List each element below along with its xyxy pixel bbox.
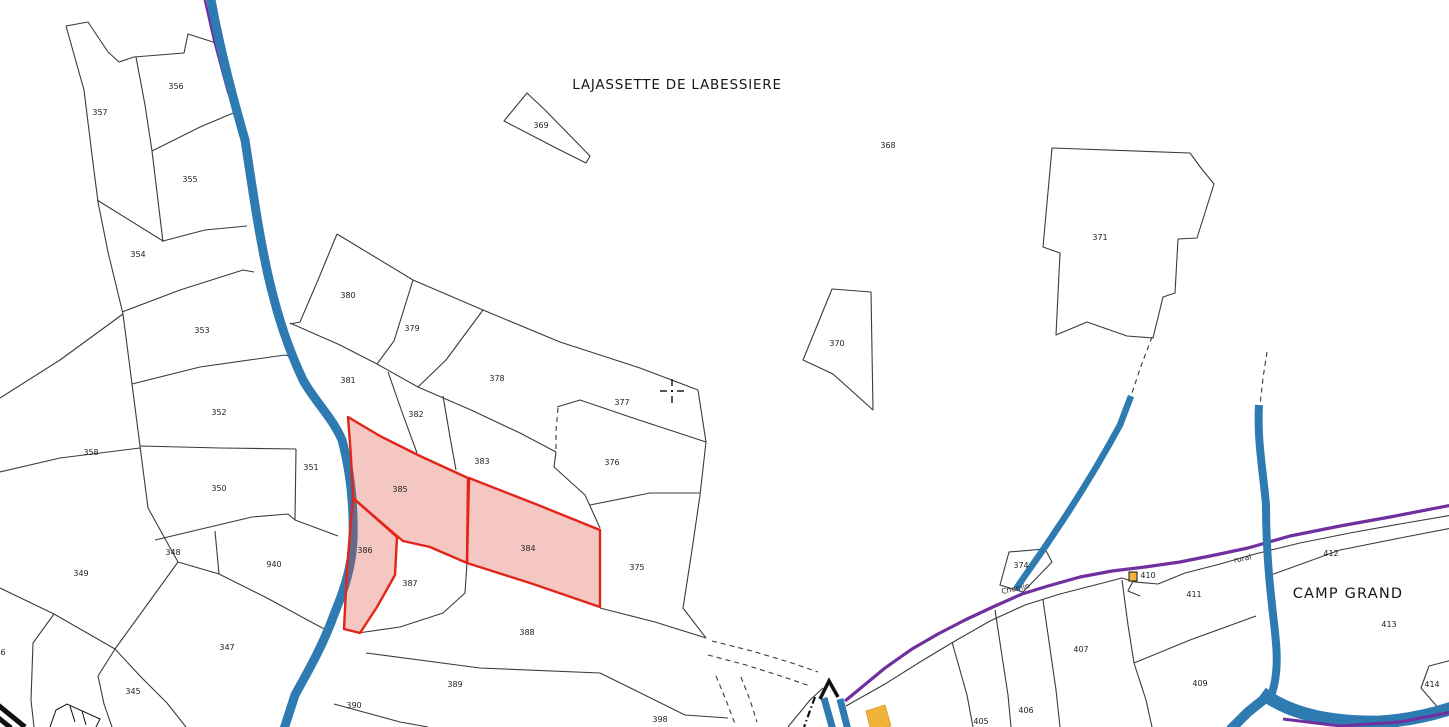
parcel-label-409: 409 (1192, 679, 1207, 688)
map-viewport[interactable]: 3573563553543533523583503513483499403473… (0, 0, 1449, 727)
parcel-label-411: 411 (1186, 590, 1201, 599)
parcel-label-375: 375 (629, 563, 644, 572)
parcel-label-368: 368 (880, 141, 895, 150)
parcel-label-350: 350 (211, 484, 226, 493)
building-410-icon (1129, 572, 1137, 581)
parcel-label-382: 382 (408, 410, 423, 419)
parcel-label-413: 413 (1381, 620, 1396, 629)
parcel-label-346: 346 (0, 648, 6, 657)
parcel-label-389: 389 (447, 680, 462, 689)
parcel-label-347: 347 (219, 643, 234, 652)
parcel-label-352: 352 (211, 408, 226, 417)
parcel-label-376: 376 (604, 458, 619, 467)
parcel-label-348: 348 (165, 548, 180, 557)
parcel-label-384: 384 (520, 544, 535, 553)
parcel-label-355: 355 (182, 175, 197, 184)
parcel-label-371: 371 (1092, 233, 1107, 242)
parcel-label-357: 357 (92, 108, 107, 117)
parcel-label-380: 380 (340, 291, 355, 300)
parcel-label-374: 374 (1013, 561, 1028, 570)
parcel-label-369: 369 (533, 121, 548, 130)
parcel-label-410: 410 (1140, 571, 1155, 580)
parcel-label-353: 353 (194, 326, 209, 335)
parcel-label-358: 358 (83, 448, 98, 457)
parcel-label-377: 377 (614, 398, 629, 407)
parcel-label-390: 390 (346, 701, 361, 710)
parcel-label-383: 383 (474, 457, 489, 466)
parcel-label-381: 381 (340, 376, 355, 385)
parcel-label-386: 386 (357, 546, 372, 555)
parcel-label-407: 407 (1073, 645, 1088, 654)
parcel-label-414: 414 (1424, 680, 1439, 689)
parcel-label-388: 388 (519, 628, 534, 637)
parcel-label-354: 354 (130, 250, 145, 259)
cadastral-map[interactable]: 3573563553543533523583503513483499403473… (0, 0, 1449, 727)
parcel-label-385: 385 (392, 485, 407, 494)
parcel-label-405: 405 (973, 717, 988, 726)
map-background (0, 0, 1449, 727)
parcel-label-349: 349 (73, 569, 88, 578)
parcel-label-351: 351 (303, 463, 318, 472)
place-label: CAMP GRAND (1293, 586, 1404, 602)
parcel-label-378: 378 (489, 374, 504, 383)
parcel-label-406: 406 (1018, 706, 1033, 715)
parcel-label-379: 379 (404, 324, 419, 333)
parcel-label-370: 370 (829, 339, 844, 348)
parcel-label-412: 412 (1323, 549, 1338, 558)
parcel-label-345: 345 (125, 687, 140, 696)
parcel-label-387: 387 (402, 579, 417, 588)
parcel-label-940: 940 (266, 560, 281, 569)
parcel-label-398: 398 (652, 715, 667, 724)
place-label: LAJASSETTE DE LABESSIERE (572, 77, 782, 93)
crosshair-dot (671, 390, 673, 392)
parcel-label-356: 356 (168, 82, 183, 91)
